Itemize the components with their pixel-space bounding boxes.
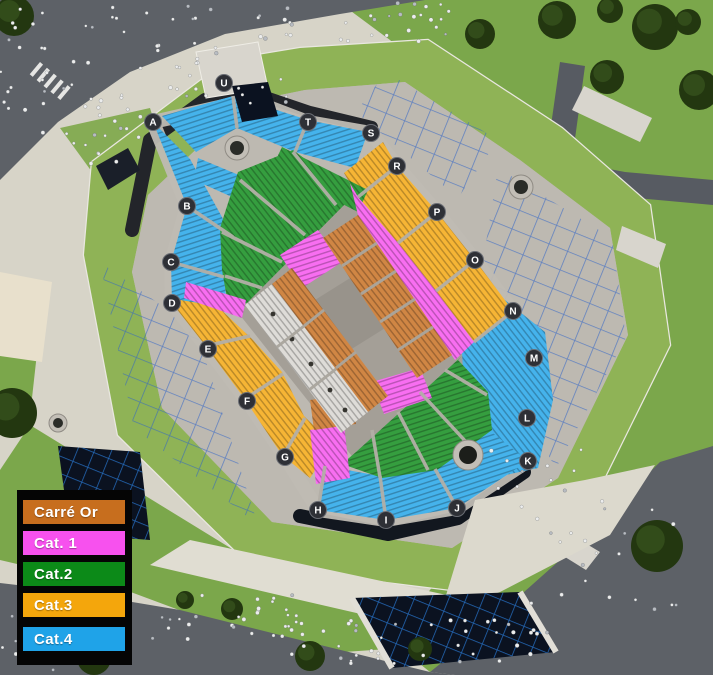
section-letter: F [244, 397, 250, 408]
section-badge-A[interactable]: A [145, 114, 162, 131]
section-badge-T[interactable]: T [300, 114, 317, 131]
section-badge-J[interactable]: J [449, 500, 466, 517]
section-badge-F[interactable]: F [239, 393, 256, 410]
section-badge-P[interactable]: P [429, 204, 446, 221]
legend-label: Cat. 1 [34, 535, 77, 552]
section-letter: M [530, 354, 538, 365]
legend-item-cat1[interactable]: Cat. 1 [23, 531, 125, 555]
section-letter: R [393, 162, 401, 173]
legend-label: Cat.3 [34, 597, 73, 614]
section-badge-O[interactable]: O [467, 252, 484, 269]
legend-item-carre-or[interactable]: Carré Or [23, 500, 125, 524]
section-badge-N[interactable]: N [505, 303, 522, 320]
section-letter: T [305, 118, 311, 129]
section-letter: S [368, 129, 375, 140]
legend-item-cat2[interactable]: Cat.2 [23, 562, 125, 586]
section-letter: H [314, 506, 321, 517]
stadium-seating-map: ABCDEFGHIJKLMNOPRSTU Carré OrCat. 1Cat.2… [0, 0, 713, 675]
section-letter: J [454, 504, 460, 515]
section-letter: B [183, 202, 190, 213]
section-badge-S[interactable]: S [363, 125, 380, 142]
section-letter: O [471, 256, 479, 267]
section-badge-G[interactable]: G [277, 449, 294, 466]
section-letter: K [524, 457, 532, 468]
legend-label: Cat.2 [34, 566, 73, 583]
section-badge-C[interactable]: C [163, 254, 180, 271]
section-badge-D[interactable]: D [164, 295, 181, 312]
seating-magenta-sw [310, 424, 350, 484]
section-badge-M[interactable]: M [526, 350, 543, 367]
section-badge-H[interactable]: H [310, 502, 327, 519]
section-letter: P [434, 208, 441, 219]
section-badge-E[interactable]: E [200, 341, 217, 358]
legend-label: Cat.4 [34, 631, 73, 648]
legend-item-cat4[interactable]: Cat.4 [23, 627, 125, 651]
legend-label: Carré Or [34, 504, 98, 521]
section-letter: A [149, 118, 156, 129]
category-legend: Carré OrCat. 1Cat.2Cat.3Cat.4 [17, 490, 132, 665]
section-letter: D [168, 299, 175, 310]
section-letter: L [524, 414, 530, 425]
section-badge-L[interactable]: L [519, 410, 536, 427]
section-badge-R[interactable]: R [389, 158, 406, 175]
section-letter: I [385, 516, 388, 527]
legend-item-cat3[interactable]: Cat.3 [23, 593, 125, 617]
section-letter: N [509, 307, 516, 318]
section-letter: G [281, 453, 289, 464]
section-badge-K[interactable]: K [520, 453, 537, 470]
section-badge-I[interactable]: I [378, 512, 395, 529]
section-letter: C [167, 258, 174, 269]
section-badge-U[interactable]: U [216, 75, 233, 92]
section-letter: E [205, 345, 212, 356]
section-letter: U [220, 79, 227, 90]
section-badge-B[interactable]: B [179, 198, 196, 215]
